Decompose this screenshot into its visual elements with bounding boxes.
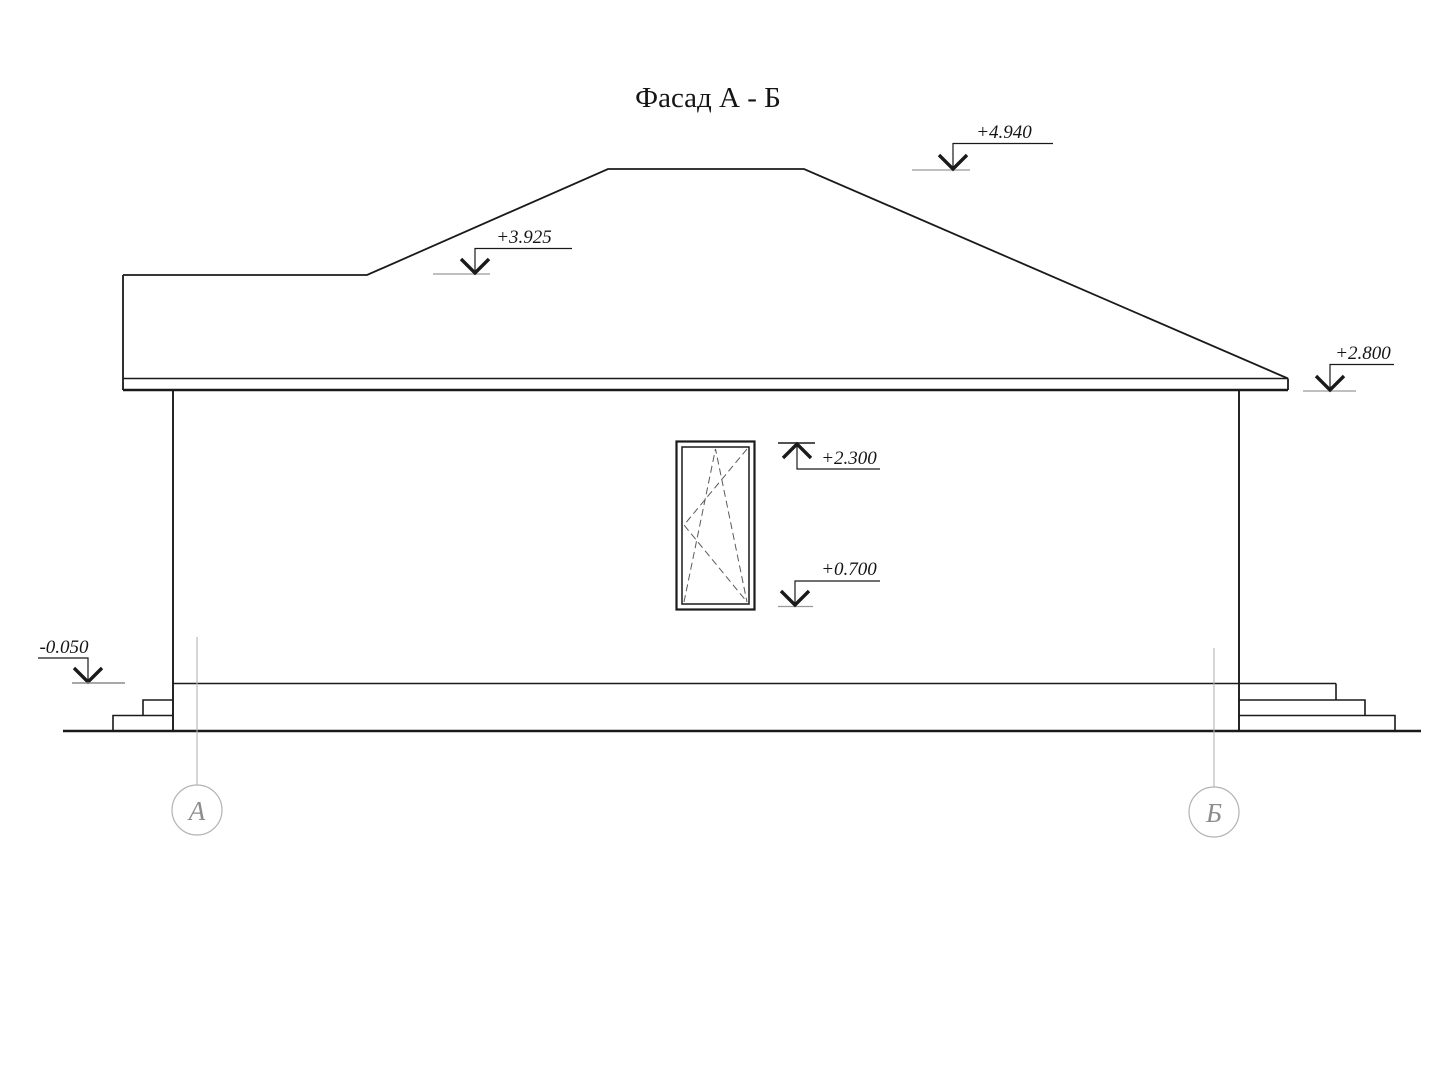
facade-drawing-sheet: Фасад А - Б +4.940 (0, 0, 1440, 1080)
axis-label-b: Б (1205, 798, 1222, 828)
steps-right (1239, 684, 1395, 732)
window-outer-frame (677, 442, 755, 610)
elevation-marker-window-top: +2.300 (778, 443, 880, 469)
step-right-lower (1239, 716, 1395, 732)
roof (123, 169, 1288, 390)
elevation-marker-ridge: +4.940 (912, 122, 1053, 170)
leader-line (1330, 365, 1394, 391)
roof-outline (123, 169, 1288, 379)
elevation-marker-plinth: -0.050 (38, 637, 125, 683)
step-right-middle (1239, 700, 1365, 716)
elevation-label: +2.300 (821, 448, 877, 469)
elevation-marker-roof-ledge: +3.925 (433, 227, 572, 274)
elevation-marker-eaves: +2.800 (1303, 343, 1394, 391)
elevation-label: +2.800 (1335, 343, 1391, 364)
elevation-label: +4.940 (976, 122, 1032, 143)
axis-label-a: А (187, 796, 206, 826)
elevation-marker-window-sill: +0.700 (778, 559, 880, 607)
drawing-title: Фасад А - Б (635, 82, 781, 114)
steps-left (113, 700, 173, 731)
axis-marker-b: Б (1189, 648, 1239, 837)
step-left-upper (143, 700, 173, 716)
axis-marker-a: А (172, 637, 222, 835)
elevation-label: +3.925 (496, 227, 552, 248)
step-left-lower (113, 716, 173, 732)
elevation-label: -0.050 (39, 637, 89, 658)
window (677, 442, 755, 610)
elevation-label: +0.700 (821, 559, 877, 580)
facade-drawing: Фасад А - Б +4.940 (0, 0, 1440, 1080)
leader-line (38, 658, 88, 681)
